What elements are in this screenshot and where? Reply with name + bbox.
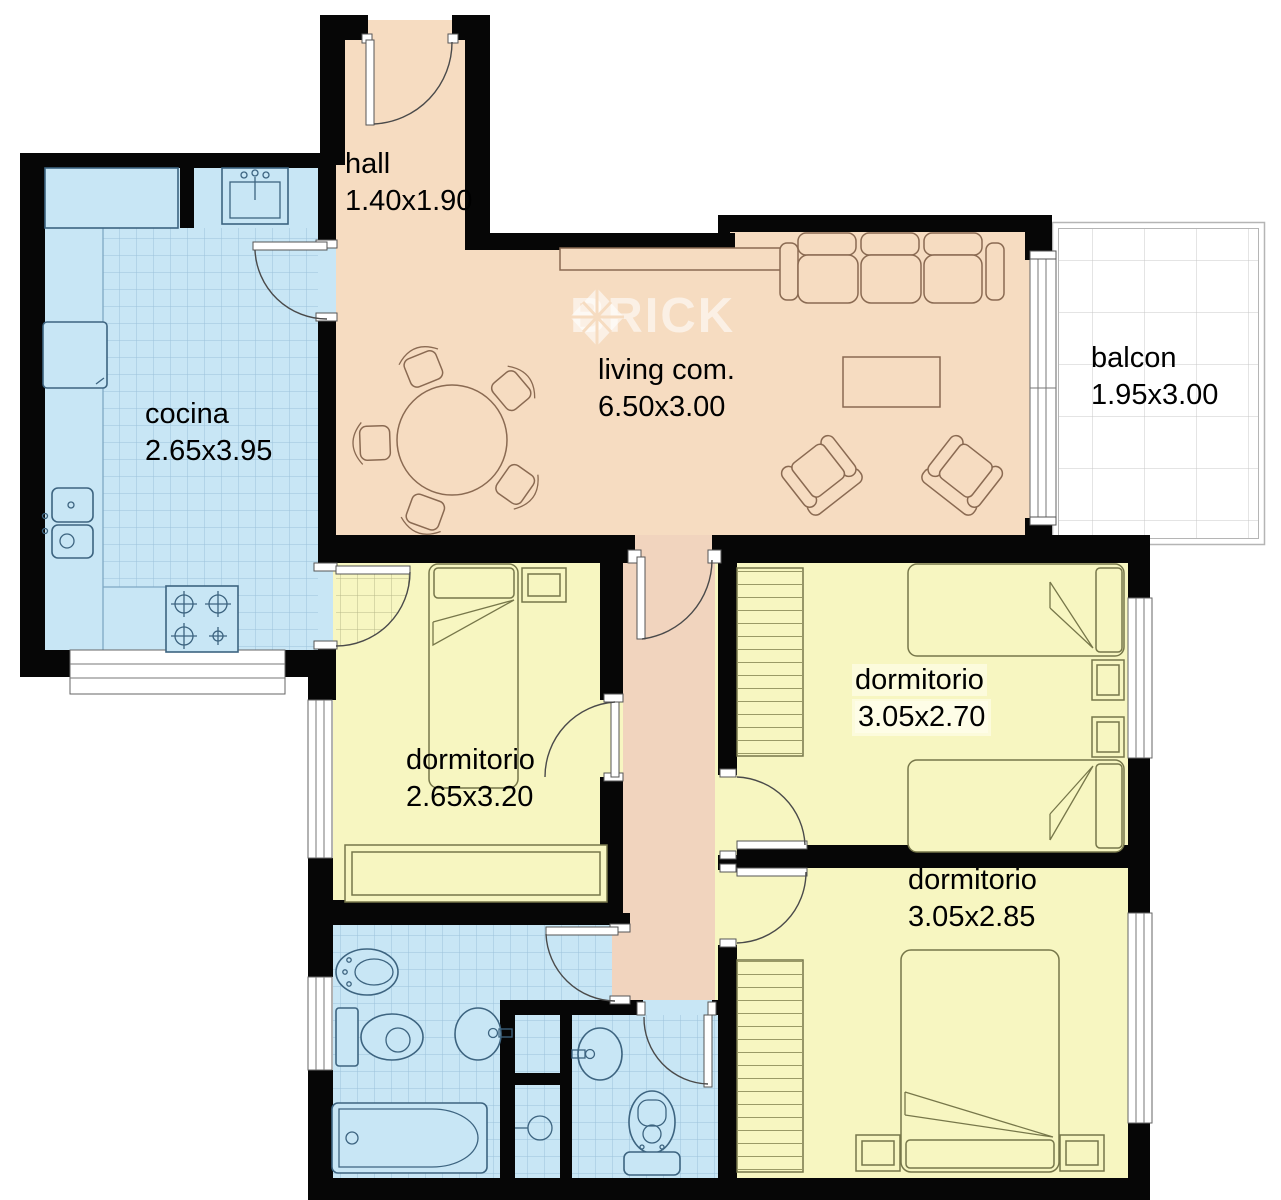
bedroom-right-window — [1128, 598, 1152, 758]
nightstand — [1092, 717, 1124, 757]
room-name: dormitorio — [852, 664, 987, 696]
room-label-hall: hall 1.40x1.90 — [345, 146, 472, 220]
bathroom-window — [308, 977, 332, 1070]
room-dimensions: 1.40x1.90 — [345, 183, 472, 220]
room-dimensions: 6.50x3.00 — [598, 389, 735, 426]
kitchen-window — [70, 650, 285, 694]
bedroom-left-window — [308, 700, 332, 858]
sofa — [780, 233, 1004, 303]
room-label-bedroom-left: dormitorio 2.65x3.20 — [406, 742, 535, 816]
bedroom-bottom-window — [1128, 913, 1152, 1123]
room-dimensions: 2.65x3.95 — [145, 433, 272, 470]
room-dimensions: 2.65x3.20 — [406, 779, 535, 816]
dresser — [345, 845, 607, 902]
nightstand — [856, 1135, 900, 1171]
brick-diamond-logo-icon — [570, 288, 624, 346]
brand-watermark: BRICK — [570, 288, 735, 344]
floor-plan: hall 1.40x1.90 living com. 6.50x3.00 bal… — [0, 0, 1281, 1200]
kitchen-counter — [45, 168, 178, 228]
closet-bottom-bedroom — [737, 960, 803, 1172]
bidet — [336, 949, 398, 995]
room-dimensions: 1.95x3.00 — [1091, 377, 1218, 414]
room-label-kitchen: cocina 2.65x3.95 — [145, 396, 272, 470]
room-dimensions: 3.05x2.70 — [855, 701, 988, 733]
room-name: dormitorio — [406, 744, 535, 776]
bed-double — [901, 950, 1059, 1172]
closet-right-bedroom — [737, 568, 803, 756]
room-name: hall — [345, 148, 390, 180]
room-label-bedroom-bottom: dormitorio 3.05x2.85 — [908, 862, 1037, 936]
bed-single-top — [908, 564, 1124, 656]
room-name: balcon — [1091, 342, 1176, 374]
stove — [166, 586, 238, 652]
room-name: dormitorio — [908, 864, 1037, 896]
nightstand — [1092, 660, 1124, 700]
nightstand — [522, 568, 566, 602]
nightstand — [1060, 1135, 1104, 1171]
balcony-sliding-door — [1030, 258, 1056, 520]
room-dimensions: 3.05x2.85 — [908, 899, 1037, 936]
floor-plan-drawing — [0, 0, 1281, 1200]
fridge — [43, 322, 107, 388]
bathtub — [332, 1103, 487, 1173]
room-name: living com. — [598, 354, 735, 386]
room-label-balcony: balcon 1.95x3.00 — [1091, 340, 1218, 414]
bed-single-bottom — [908, 760, 1124, 852]
kitchen-sink-top — [222, 168, 288, 224]
coffee-table — [843, 357, 940, 407]
room-label-living: living com. 6.50x3.00 — [598, 352, 735, 426]
room-label-bedroom-right: dormitorio 3.05x2.70 — [852, 662, 991, 736]
room-name: cocina — [145, 398, 229, 430]
sideboard — [560, 248, 782, 270]
